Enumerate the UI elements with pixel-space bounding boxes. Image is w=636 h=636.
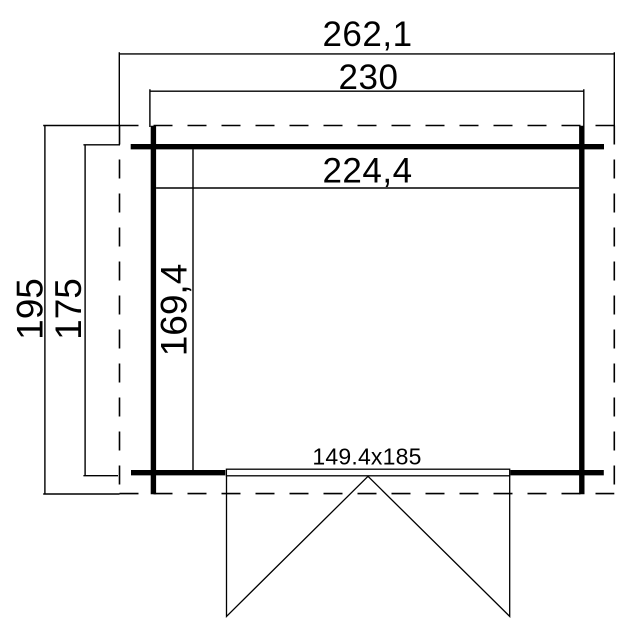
svg-text:262,1: 262,1 [322, 15, 412, 54]
svg-text:175: 175 [48, 278, 89, 340]
svg-text:169,4: 169,4 [154, 264, 195, 357]
svg-text:149.4x185: 149.4x185 [312, 444, 421, 470]
svg-text:224,4: 224,4 [322, 152, 412, 191]
